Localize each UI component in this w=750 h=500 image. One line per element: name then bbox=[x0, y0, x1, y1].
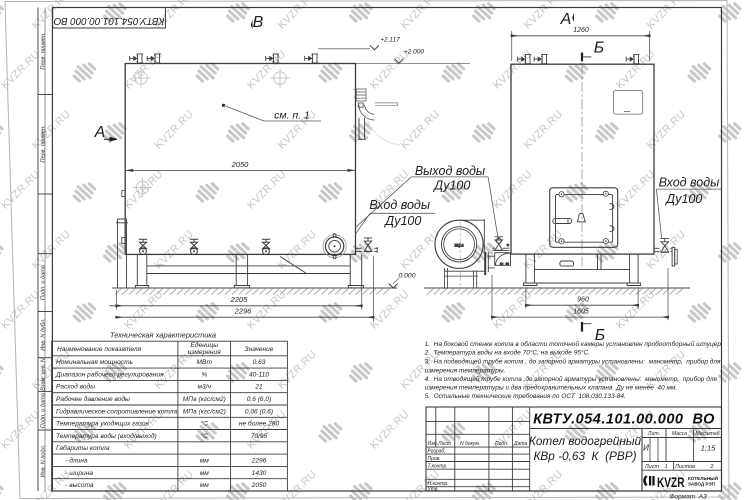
svg-text:KVZR.RU: KVZR.RU bbox=[645, 0, 688, 32]
svg-text:м3/ч: м3/ч bbox=[198, 384, 212, 391]
svg-text:КВр -0,63 К (РВР): КВр -0,63 К (РВР) bbox=[533, 449, 636, 463]
svg-text:Подп. и дата: Подп. и дата bbox=[40, 265, 46, 300]
svg-text:KVZR.RU: KVZR.RU bbox=[276, 468, 319, 500]
svg-text:ВЦ14: ВЦ14 bbox=[455, 244, 464, 248]
svg-text:- высота: - высота bbox=[56, 482, 94, 489]
svg-text:мм: мм bbox=[200, 482, 210, 489]
svg-text:Изм.Лист: Изм.Лист bbox=[428, 441, 452, 447]
svg-text:Рабочее давление воды: Рабочее давление воды bbox=[56, 395, 130, 403]
svg-text:Номинальная мощность: Номинальная мощность bbox=[56, 359, 134, 366]
svg-text:960: 960 bbox=[577, 297, 589, 304]
svg-text:KVZR.RU: KVZR.RU bbox=[645, 228, 688, 271]
svg-text:Наименование показателя: Наименование показателя bbox=[57, 346, 142, 353]
svg-text:В: В bbox=[253, 14, 264, 31]
svg-text:KVZR.RU: KVZR.RU bbox=[30, 108, 73, 151]
svg-text:не более 280: не более 280 bbox=[239, 420, 280, 428]
svg-text:2205: 2205 bbox=[230, 295, 249, 304]
svg-text:- длина: - длина bbox=[56, 456, 88, 464]
svg-text:KVZR.RU: KVZR.RU bbox=[645, 108, 688, 151]
svg-text:Расход воды: Расход воды bbox=[56, 383, 95, 391]
svg-text:KVZR.RU: KVZR.RU bbox=[153, 108, 196, 151]
svg-text:Формат А3: Формат А3 bbox=[669, 494, 707, 500]
svg-text:Пров.: Пров. bbox=[428, 456, 441, 462]
svg-text:0,06 (0,6): 0,06 (0,6) bbox=[245, 408, 273, 415]
svg-text:KVZR.RU: KVZR.RU bbox=[491, 168, 534, 211]
svg-text:Масса: Масса bbox=[672, 431, 687, 437]
svg-text:КВТУ.054.101.00.000 ВО: КВТУ.054.101.00.000 ВО bbox=[53, 15, 164, 26]
svg-text:KVZR.RU: KVZR.RU bbox=[245, 48, 288, 91]
svg-text:0.000: 0.000 bbox=[398, 273, 415, 280]
svg-text:KVZR.RU: KVZR.RU bbox=[276, 228, 319, 271]
svg-text:Выход воды: Выход воды bbox=[415, 164, 485, 178]
svg-text:МВт: МВт bbox=[197, 359, 213, 366]
svg-text:KVZR.RU: KVZR.RU bbox=[368, 288, 411, 331]
svg-text:0,63: 0,63 bbox=[253, 359, 266, 366]
svg-text:21: 21 bbox=[254, 384, 263, 391]
svg-text:Лит.: Лит. bbox=[647, 431, 660, 437]
svg-text:Ду100: Ду100 bbox=[432, 178, 470, 192]
svg-text:+2.000: +2.000 bbox=[404, 49, 424, 56]
svg-text:KVZR.RU: KVZR.RU bbox=[276, 348, 319, 391]
svg-text:Перв. примен.: Перв. примен. bbox=[40, 32, 46, 69]
svg-text:1605: 1605 bbox=[573, 309, 589, 316]
svg-text:KVZR.RU: KVZR.RU bbox=[614, 168, 657, 211]
svg-text:2296: 2296 bbox=[234, 307, 253, 316]
svg-text:KVZR.RU: KVZR.RU bbox=[522, 0, 565, 32]
svg-text:А: А bbox=[94, 124, 106, 141]
svg-text:2. Температура воды на входе: 2. Температура воды на входе 70°С, на вы… bbox=[424, 349, 591, 357]
svg-text:KVZR.RU: KVZR.RU bbox=[522, 228, 565, 271]
svg-text:см. п. 1: см. п. 1 bbox=[274, 110, 310, 122]
svg-text:2050: 2050 bbox=[251, 482, 267, 489]
svg-text:А: А bbox=[560, 11, 572, 28]
svg-text:1260: 1260 bbox=[573, 27, 589, 34]
svg-text:Лист: Лист bbox=[644, 464, 660, 470]
svg-text:МПа (кгс/см2): МПа (кгс/см2) bbox=[183, 396, 226, 403]
svg-text:%: % bbox=[201, 371, 207, 378]
svg-text:измерения: измерения bbox=[188, 349, 221, 356]
svg-text:KVZR.RU: KVZR.RU bbox=[0, 288, 43, 331]
svg-text:KVZR.RU: KVZR.RU bbox=[122, 288, 165, 331]
svg-text:Значение: Значение bbox=[245, 346, 274, 353]
svg-text:мм: мм bbox=[200, 457, 210, 464]
svg-text:- ширина: - ширина bbox=[56, 470, 93, 477]
svg-text:KVZR.RU: KVZR.RU bbox=[368, 408, 411, 451]
svg-text:мм: мм bbox=[200, 470, 210, 477]
svg-text:KVZR.RU: KVZR.RU bbox=[153, 228, 196, 271]
svg-text:Т.контр.: Т.контр. bbox=[428, 463, 448, 469]
svg-text:Вход воды: Вход воды bbox=[369, 198, 430, 212]
svg-text:KVZR.RU: KVZR.RU bbox=[522, 468, 565, 500]
svg-text:Б: Б bbox=[594, 40, 604, 57]
svg-text:Габариты котла: Габариты котла bbox=[56, 444, 110, 452]
svg-text:МПа (кгс/см2): МПа (кгс/см2) bbox=[183, 408, 226, 415]
svg-text:°С: °С bbox=[201, 420, 209, 428]
svg-text:40-110: 40-110 bbox=[249, 371, 269, 378]
svg-text:Взам. инв. N: Взам. инв. N bbox=[40, 357, 46, 391]
svg-text:Инв. N дубл.: Инв. N дубл. bbox=[40, 318, 46, 350]
svg-text:KVZR.RU: KVZR.RU bbox=[399, 108, 442, 151]
svg-text:Дата: Дата bbox=[513, 441, 527, 447]
svg-text:Масштаб: Масштаб bbox=[695, 431, 720, 437]
svg-text:KVZR.RU: KVZR.RU bbox=[153, 468, 196, 500]
svg-text:0,6 (6,0): 0,6 (6,0) bbox=[247, 396, 272, 403]
svg-text:1:15: 1:15 bbox=[701, 444, 716, 453]
svg-text:KVZR.RU: KVZR.RU bbox=[614, 288, 657, 331]
svg-text:°С: °С bbox=[201, 432, 209, 440]
svg-text:Гидравлическое сопротивление к: Гидравлическое сопротивление котла bbox=[56, 407, 177, 415]
svg-text:Котел водогрейный: Котел водогрейный bbox=[529, 434, 642, 448]
svg-text:70/95: 70/95 bbox=[251, 433, 268, 440]
svg-text:Разраб.: Разраб. bbox=[428, 449, 446, 455]
svg-text:Техническая характеристика: Техническая характеристика bbox=[110, 331, 216, 340]
svg-text:2050: 2050 bbox=[231, 160, 250, 169]
svg-text:измерения температуры.: измерения температуры. bbox=[425, 368, 506, 375]
svg-text:измерения температуры и два пр: измерения температуры и два предохраните… bbox=[425, 384, 678, 392]
svg-text:Инв. N подл.: Инв. N подл. bbox=[40, 445, 46, 478]
svg-text:Утв.: Утв. bbox=[428, 487, 439, 493]
svg-text:+2.117: +2.117 bbox=[380, 37, 400, 44]
svg-text:1. На боковой стенке котла в: 1. На боковой стенке котла в области топ… bbox=[425, 340, 722, 348]
svg-text:4. На отводящей трубе котла ,: 4. На отводящей трубе котла ,до запорной… bbox=[425, 375, 718, 383]
svg-text:1: 1 bbox=[664, 464, 667, 470]
svg-text:ЗАВОД РЭП: ЗАВОД РЭП bbox=[688, 482, 715, 487]
svg-text:KVZR.RU: KVZR.RU bbox=[399, 0, 442, 32]
svg-text:Подп.: Подп. bbox=[495, 441, 508, 447]
svg-text:Диапазон рабочего регулировани: Диапазон рабочего регулирования bbox=[55, 370, 164, 378]
svg-text:KVZR.RU: KVZR.RU bbox=[0, 408, 43, 451]
svg-text:И: И bbox=[643, 444, 649, 453]
svg-text:1430: 1430 bbox=[252, 470, 267, 477]
svg-text:2296: 2296 bbox=[251, 457, 267, 464]
svg-text:КОТЕЛЬНЫЙ: КОТЕЛЬНЫЙ bbox=[688, 474, 718, 481]
svg-text:3. На подводящей трубе котла: 3. На подводящей трубе котла , до запорн… bbox=[425, 358, 721, 366]
svg-text:KVZR.RU: KVZR.RU bbox=[491, 288, 534, 331]
svg-text:5. Остальные технические треб: 5. Остальные технические требования по О… bbox=[425, 392, 626, 400]
svg-text:Листов: Листов bbox=[674, 464, 695, 470]
svg-text:Ду100: Ду100 bbox=[383, 214, 421, 228]
svg-text:КВТУ.054.101.00.000 ВО: КВТУ.054.101.00.000 ВО bbox=[533, 412, 715, 428]
svg-text:KVZR.RU: KVZR.RU bbox=[0, 168, 43, 211]
svg-text:Ду100: Ду100 bbox=[664, 192, 702, 206]
svg-text:Подп. и дата: Подп. и дата bbox=[40, 393, 46, 428]
svg-text:KVZR.RU: KVZR.RU bbox=[30, 228, 73, 271]
svg-text:KVZR: KVZR bbox=[657, 474, 685, 490]
svg-text:KVZR.RU: KVZR.RU bbox=[245, 288, 288, 331]
svg-text:Температура уходящих газов: Температура уходящих газов bbox=[56, 420, 149, 428]
svg-text:Вход воды: Вход воды bbox=[659, 175, 720, 189]
svg-text:2: 2 bbox=[709, 464, 713, 470]
svg-text:KVZR.RU: KVZR.RU bbox=[522, 108, 565, 151]
svg-text:Еденицы: Еденицы bbox=[190, 341, 218, 349]
svg-text:N докум.: N докум. bbox=[460, 441, 480, 447]
svg-text:Перв. примен.: Перв. примен. bbox=[40, 125, 46, 162]
svg-text:Температура воды (вход/выход): Температура воды (вход/выход) bbox=[56, 432, 157, 440]
svg-text:KVZR.RU: KVZR.RU bbox=[276, 0, 319, 32]
svg-text:KVZR.RU: KVZR.RU bbox=[245, 168, 288, 211]
svg-text:KVZR.RU: KVZR.RU bbox=[122, 168, 165, 211]
